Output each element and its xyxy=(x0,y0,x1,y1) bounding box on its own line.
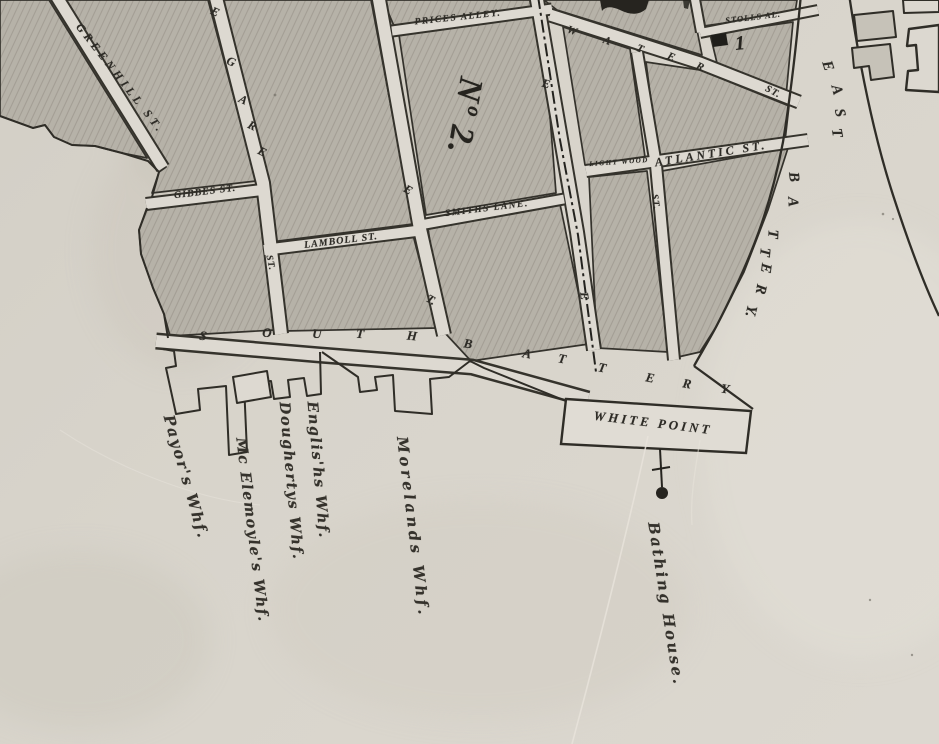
map-canvas: GREENHILL ST.EGAREST.GIBBES ST.LAMBOLL S… xyxy=(0,0,939,744)
building-outline-1 xyxy=(906,25,939,92)
building-shaded-1 xyxy=(854,11,896,41)
city-block xyxy=(428,204,589,361)
building-shaded-2 xyxy=(852,44,894,80)
wharf-building xyxy=(233,371,271,403)
bathing-house-marker xyxy=(652,449,670,499)
city-block xyxy=(399,15,556,215)
map-drawing xyxy=(0,0,939,744)
buildings xyxy=(852,0,939,92)
ward-1-marker-square xyxy=(711,33,728,47)
bathing-house-dot xyxy=(656,487,668,499)
building-outline-2 xyxy=(903,0,939,13)
